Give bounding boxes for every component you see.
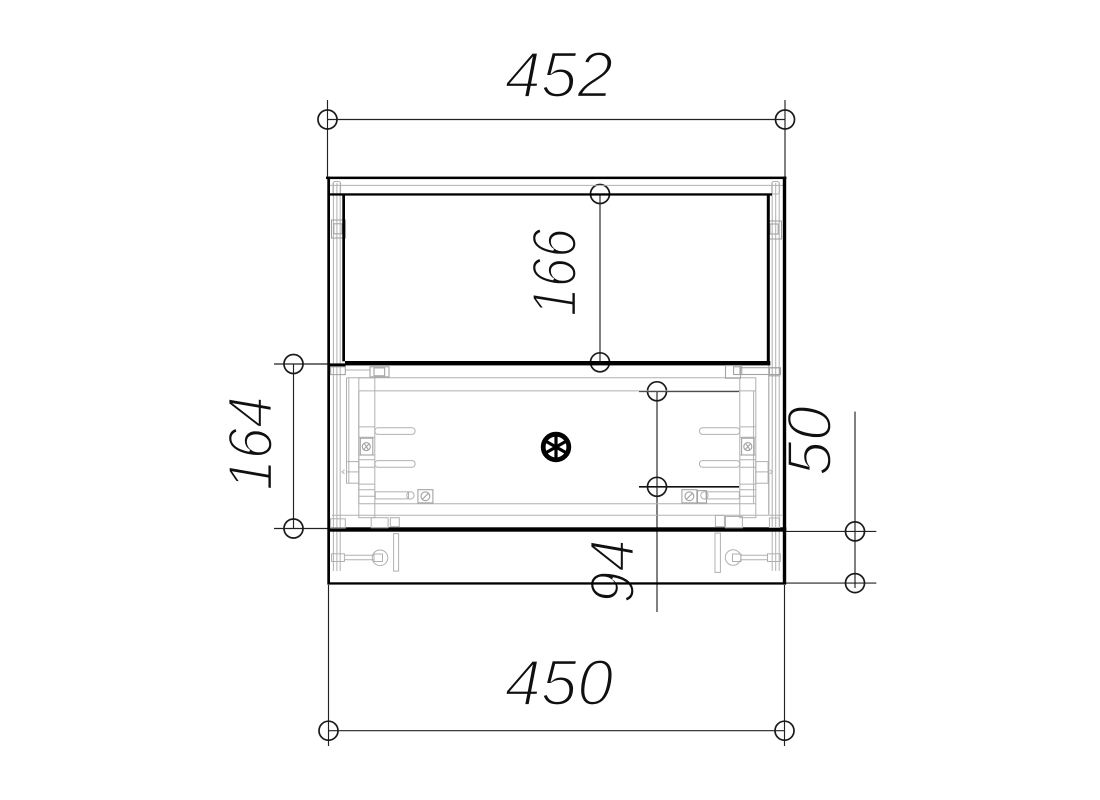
- svg-text:94: 94: [577, 539, 648, 603]
- svg-text:164: 164: [215, 396, 285, 491]
- svg-text:166: 166: [520, 228, 590, 317]
- svg-text:452: 452: [505, 38, 613, 111]
- svg-text:450: 450: [505, 646, 613, 719]
